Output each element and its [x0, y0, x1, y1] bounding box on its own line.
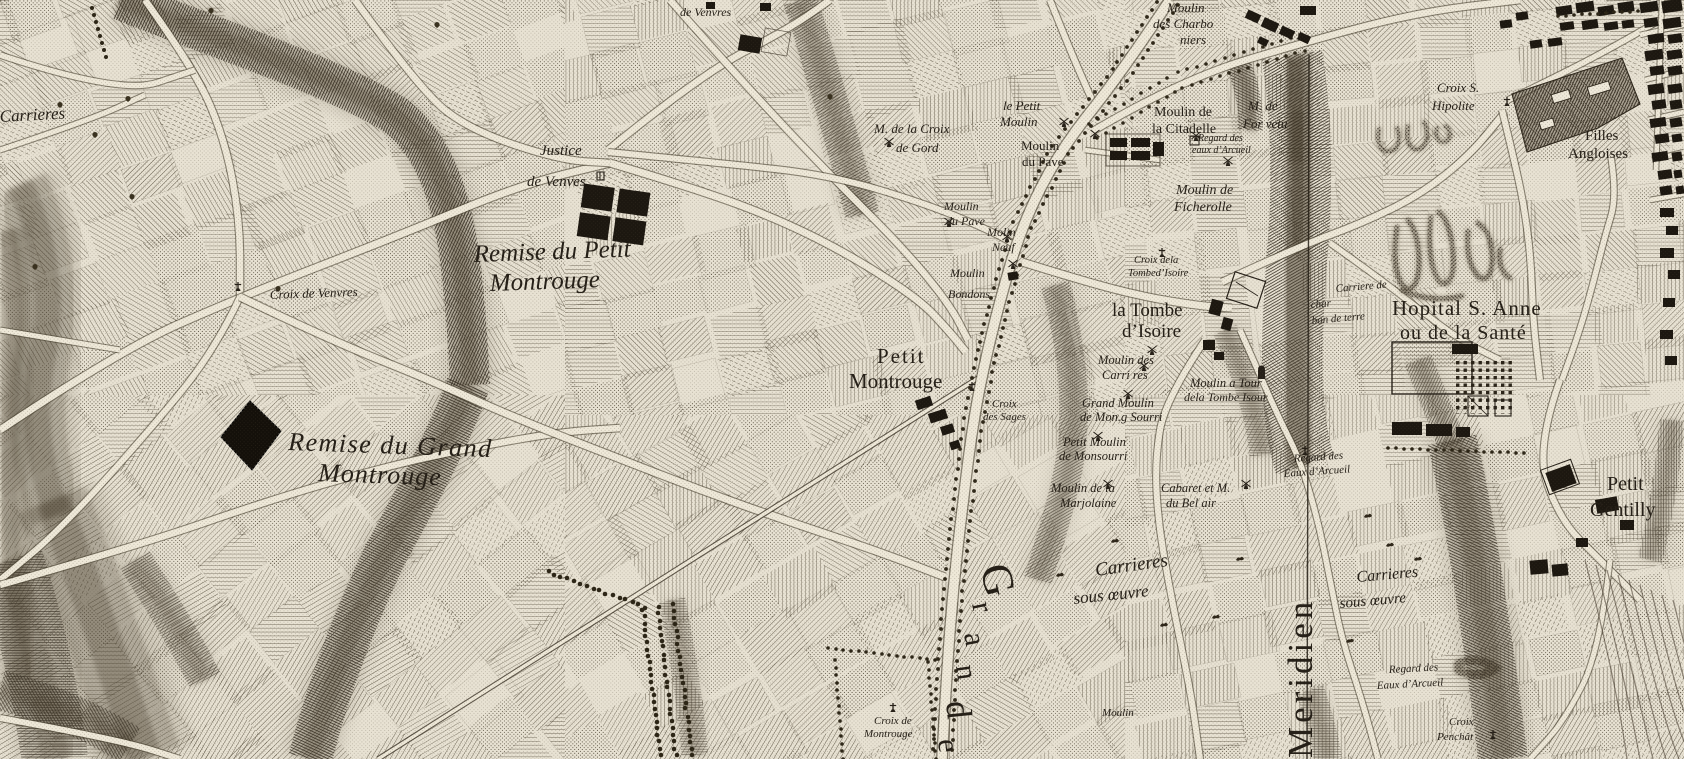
- svg-text:Meridien: Meridien: [1281, 598, 1320, 758]
- svg-text:Moulin de: Moulin de: [1175, 183, 1233, 198]
- svg-text:de Venves: de Venves: [527, 174, 586, 190]
- svg-text:niers: niers: [1180, 32, 1206, 47]
- svg-text:Grand Moulin: Grand Moulin: [1082, 396, 1154, 410]
- svg-text:For vetu: For vetu: [1242, 116, 1288, 131]
- svg-text:Hipolite: Hipolite: [1431, 98, 1475, 113]
- svg-text:ou de la Santé: ou de la Santé: [1400, 322, 1527, 344]
- svg-text:le Petit: le Petit: [1003, 98, 1041, 113]
- svg-text:Moulin a Tour: Moulin a Tour: [1189, 376, 1262, 390]
- svg-text:Penchât: Penchât: [1436, 731, 1474, 743]
- svg-text:Tombed’Isoire: Tombed’Isoire: [1128, 268, 1189, 279]
- svg-text:Gentilly: Gentilly: [1590, 499, 1656, 521]
- svg-text:Moulin: Moulin: [1166, 0, 1205, 15]
- svg-text:Montrouge: Montrouge: [863, 728, 913, 740]
- svg-text:des Charbo: des Charbo: [1153, 16, 1214, 31]
- svg-text:Moulin: Moulin: [943, 199, 979, 213]
- svg-text:Ficherolle: Ficherolle: [1173, 200, 1232, 215]
- svg-text:Moulin des: Moulin des: [1097, 353, 1154, 367]
- svg-text:dela Tombe Isour: dela Tombe Isour: [1184, 390, 1268, 404]
- svg-text:Angloises: Angloises: [1568, 146, 1628, 162]
- svg-text:Justice: Justice: [540, 143, 582, 159]
- svg-text:de Monsourri: de Monsourri: [1059, 449, 1128, 463]
- svg-text:Neuf: Neuf: [991, 240, 1016, 254]
- svg-text:de Mon.g Sourri: de Mon.g Sourri: [1080, 410, 1163, 424]
- svg-text:Petit Moulin: Petit Moulin: [1062, 435, 1126, 449]
- svg-text:du Pave: du Pave: [946, 214, 986, 228]
- svg-text:Carrieres: Carrieres: [0, 104, 66, 126]
- svg-text:des Sages: des Sages: [983, 411, 1026, 423]
- svg-text:la Tombe: la Tombe: [1112, 300, 1183, 321]
- svg-text:Filles: Filles: [1585, 128, 1619, 144]
- svg-text:Moulin: Moulin: [1101, 707, 1134, 719]
- svg-text:du Bel air: du Bel air: [1166, 496, 1216, 510]
- svg-text:Bondons: Bondons: [948, 287, 990, 301]
- svg-text:M. de: M. de: [1247, 98, 1278, 113]
- svg-text:Montrouge: Montrouge: [849, 369, 942, 393]
- svg-text:Montrouge: Montrouge: [488, 266, 600, 297]
- svg-text:Croix S.: Croix S.: [1437, 80, 1479, 95]
- svg-text:de Gord: de Gord: [896, 140, 939, 155]
- svg-text:Moulin: Moulin: [1021, 138, 1060, 153]
- svg-text:Moulin de la: Moulin de la: [1050, 481, 1115, 495]
- svg-text:Hopital S. Anne: Hopital S. Anne: [1392, 296, 1542, 320]
- svg-text:Cabaret et M.: Cabaret et M.: [1161, 481, 1230, 495]
- svg-text:Croix: Croix: [992, 398, 1017, 410]
- svg-text:Moulin de: Moulin de: [1154, 105, 1212, 120]
- svg-text:Croix de: Croix de: [874, 715, 912, 727]
- svg-text:M. de la Croix: M. de la Croix: [873, 121, 950, 136]
- svg-text:char: char: [1310, 297, 1332, 311]
- svg-text:Petit: Petit: [877, 344, 926, 368]
- svg-text:Marjolaine: Marjolaine: [1059, 496, 1117, 510]
- svg-text:Molin: Molin: [986, 225, 1016, 239]
- svg-text:Moulin: Moulin: [999, 114, 1038, 129]
- svg-text:Croix: Croix: [1449, 716, 1474, 728]
- svg-text:Carri res: Carri res: [1102, 368, 1148, 382]
- svg-text:d’Isoire: d’Isoire: [1122, 321, 1181, 342]
- svg-text:Regard des: Regard des: [1197, 133, 1243, 144]
- svg-text:Croix dela: Croix dela: [1134, 255, 1178, 266]
- svg-text:Remise du Petit: Remise du Petit: [472, 236, 632, 269]
- svg-text:eaux d’Arcueil: eaux d’Arcueil: [1192, 145, 1251, 156]
- svg-text:Montrouge: Montrouge: [317, 458, 443, 491]
- svg-text:de Venvres: de Venvres: [680, 5, 732, 19]
- svg-text:Moulin: Moulin: [949, 266, 985, 280]
- svg-text:du Pave: du Pave: [1022, 154, 1064, 169]
- svg-text:Croix de Venvres: Croix de Venvres: [270, 284, 358, 302]
- svg-text:Petit: Petit: [1607, 473, 1644, 495]
